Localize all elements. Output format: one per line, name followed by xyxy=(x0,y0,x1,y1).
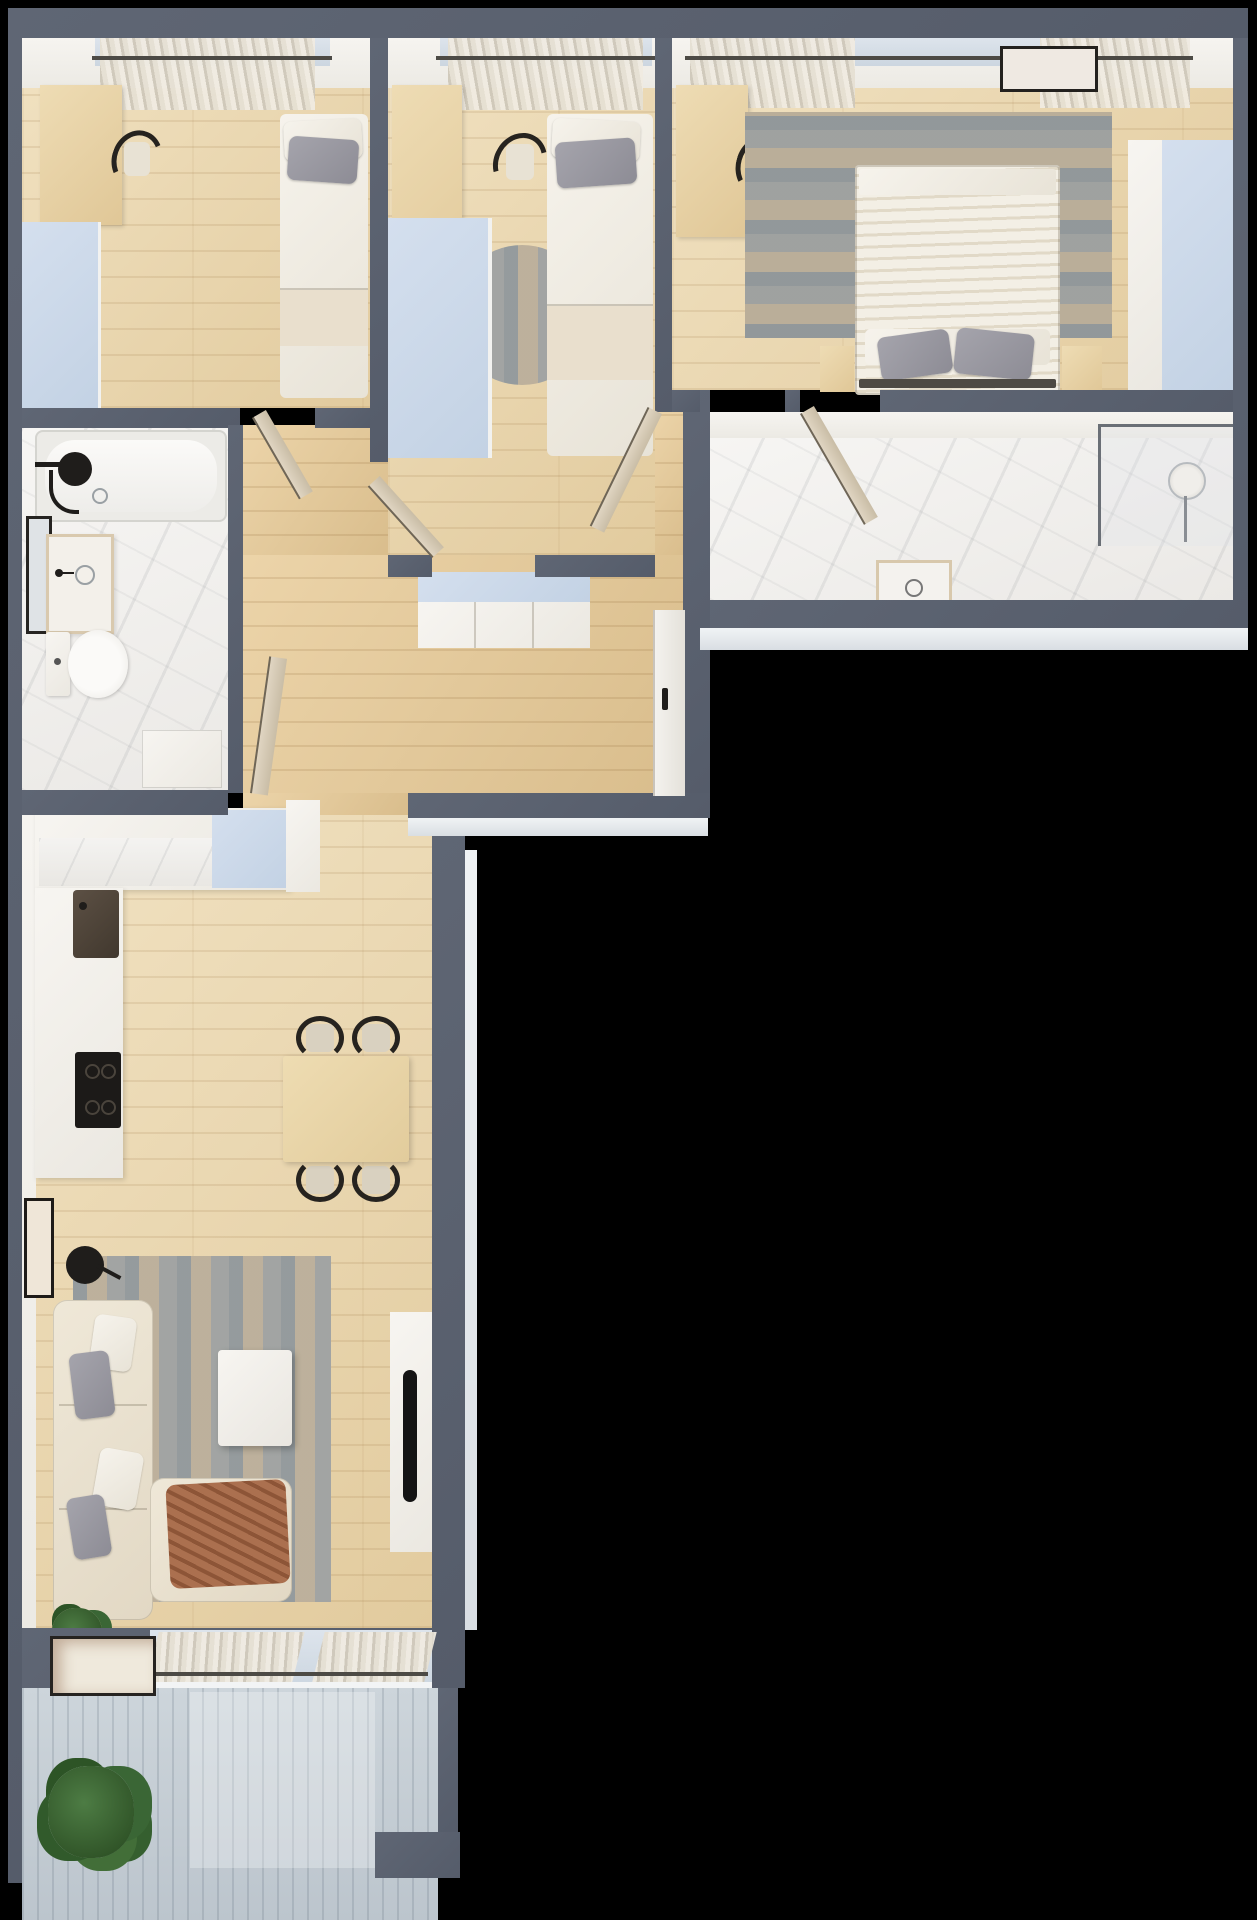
bedroom2-curtains xyxy=(448,38,643,110)
chair-frame xyxy=(352,1158,400,1202)
sofa-pillow-gray xyxy=(68,1350,116,1420)
dining-chair xyxy=(352,1158,400,1202)
bathroom1-sink-vanity xyxy=(46,534,114,634)
apartment-floorplan-render xyxy=(0,0,1257,1920)
bed-seam xyxy=(280,288,368,290)
wall-west xyxy=(8,38,22,1883)
window-curtain-left xyxy=(145,1632,304,1686)
brown-throw-blanket xyxy=(165,1479,290,1589)
bedroom1-desk xyxy=(40,85,122,225)
wall-balcony-east xyxy=(438,1688,458,1838)
wall-bedroom2-south-a xyxy=(388,555,432,577)
sink-drain xyxy=(905,579,923,597)
hall-sideboard xyxy=(418,572,590,648)
shower-glass-top xyxy=(1098,424,1233,427)
cooktop xyxy=(75,1052,121,1128)
shower-glass-side xyxy=(1098,424,1101,546)
counter-marble-front xyxy=(39,838,215,886)
dining-chair xyxy=(296,1016,344,1060)
trim-below-corridor xyxy=(408,818,708,836)
sink-drain xyxy=(75,565,95,585)
bed-seam xyxy=(547,304,653,306)
wall-living-east xyxy=(432,818,465,1688)
bedroom2-wardrobe xyxy=(388,218,492,458)
master-curtain-rod xyxy=(685,56,1193,60)
hall-upper-floor xyxy=(243,425,388,560)
wall-corridor-east xyxy=(683,390,710,793)
wall-corridor-south xyxy=(408,793,710,818)
shower-hose xyxy=(49,470,79,514)
living-wall-art xyxy=(24,1198,54,1298)
toilet-bowl xyxy=(68,630,128,698)
dining-chair xyxy=(352,1016,400,1060)
wall-bedroom1-south-b xyxy=(315,408,370,428)
wall-master-south-b xyxy=(785,390,800,412)
bed-pillow-gray-right xyxy=(953,327,1035,381)
wall-bedroom2-master xyxy=(655,38,672,412)
window-curtain-right xyxy=(311,1632,436,1686)
master-nightstand-left xyxy=(820,346,854,392)
floor-lamp xyxy=(66,1246,106,1288)
trim-east-living xyxy=(465,850,477,1630)
wall-bathroom2-south xyxy=(690,600,1248,628)
entrance-door-handle xyxy=(662,688,668,710)
bedroom2-desk-chair xyxy=(494,132,546,192)
balcony-light-patch xyxy=(190,1692,375,1868)
toilet xyxy=(46,630,130,700)
master-wardrobe-side xyxy=(1128,140,1162,390)
wall-bathroom1-east xyxy=(228,425,243,793)
window-rail xyxy=(156,1672,428,1676)
coffee-table xyxy=(218,1350,292,1446)
bed-pillow-gray xyxy=(554,137,637,188)
sideboard-seam xyxy=(532,602,534,648)
bed-blanket-beige xyxy=(280,290,368,346)
bedroom1-desk-chair xyxy=(112,130,162,188)
dining-chair xyxy=(296,1158,344,1202)
tv xyxy=(403,1370,417,1502)
washer-cabinet xyxy=(142,730,222,788)
master-wall-art xyxy=(1000,46,1098,92)
wall-bathroom1-south xyxy=(22,790,228,815)
shower-head xyxy=(1168,462,1206,500)
burner xyxy=(85,1064,100,1079)
shower-glass-enclosure xyxy=(1098,424,1233,546)
hall-nook-floor xyxy=(655,412,683,560)
bed-fold xyxy=(859,169,1056,195)
bedroom1-bed xyxy=(278,112,370,388)
wall-bedroom1-south-a xyxy=(22,408,240,428)
shower-arm xyxy=(35,462,61,467)
bathtub-drain xyxy=(92,488,108,504)
trim-below-bathroom2 xyxy=(700,628,1248,650)
bedroom2-bed xyxy=(545,112,655,458)
wall-bedroom2-south-b xyxy=(535,555,655,577)
entrance-door xyxy=(653,610,685,796)
wall-balcony-corner xyxy=(375,1832,460,1878)
kitchen-counter-left-run xyxy=(35,888,123,1178)
master-wardrobe xyxy=(1162,140,1233,390)
sink-faucet-arm xyxy=(62,572,74,574)
master-nightstand-right xyxy=(1062,346,1102,392)
master-double-bed xyxy=(855,165,1060,395)
chair-frame xyxy=(352,1016,400,1060)
burner xyxy=(101,1100,116,1115)
chair-frame xyxy=(296,1016,344,1060)
kitchen-faucet xyxy=(79,902,87,910)
wall-north xyxy=(8,8,1248,38)
balcony-plant xyxy=(48,1766,134,1858)
chair-frame xyxy=(296,1158,344,1202)
bed-blanket-beige xyxy=(547,306,653,380)
burner xyxy=(85,1100,100,1115)
shower-stem xyxy=(1184,496,1187,542)
bedroom1-curtains xyxy=(100,38,315,110)
kitchen-end-panel xyxy=(286,800,320,892)
leaning-art xyxy=(50,1636,156,1696)
bedroom1-curtain-rod xyxy=(92,56,332,60)
window-sill xyxy=(150,1682,432,1688)
sideboard-front xyxy=(418,602,590,648)
sideboard-seam xyxy=(474,602,476,648)
toilet-button xyxy=(54,658,61,665)
living-window xyxy=(150,1630,432,1688)
kitchen-sink xyxy=(73,890,119,958)
burner xyxy=(101,1064,116,1079)
kitchen-island-light-blue xyxy=(212,810,286,888)
bathtub xyxy=(35,430,227,522)
wall-east-upper xyxy=(1233,38,1248,628)
bedroom2-curtain-rod xyxy=(436,56,656,60)
wall-master-south-c xyxy=(880,390,1233,412)
dining-table xyxy=(283,1056,409,1162)
wall-bedroom1-bedroom2 xyxy=(370,38,388,462)
wall-master-south-a xyxy=(672,390,700,412)
bed-pillow-gray xyxy=(287,136,360,185)
bedroom1-wardrobe xyxy=(22,222,101,408)
chair-frame xyxy=(104,123,171,195)
bed-headboard xyxy=(859,379,1056,388)
